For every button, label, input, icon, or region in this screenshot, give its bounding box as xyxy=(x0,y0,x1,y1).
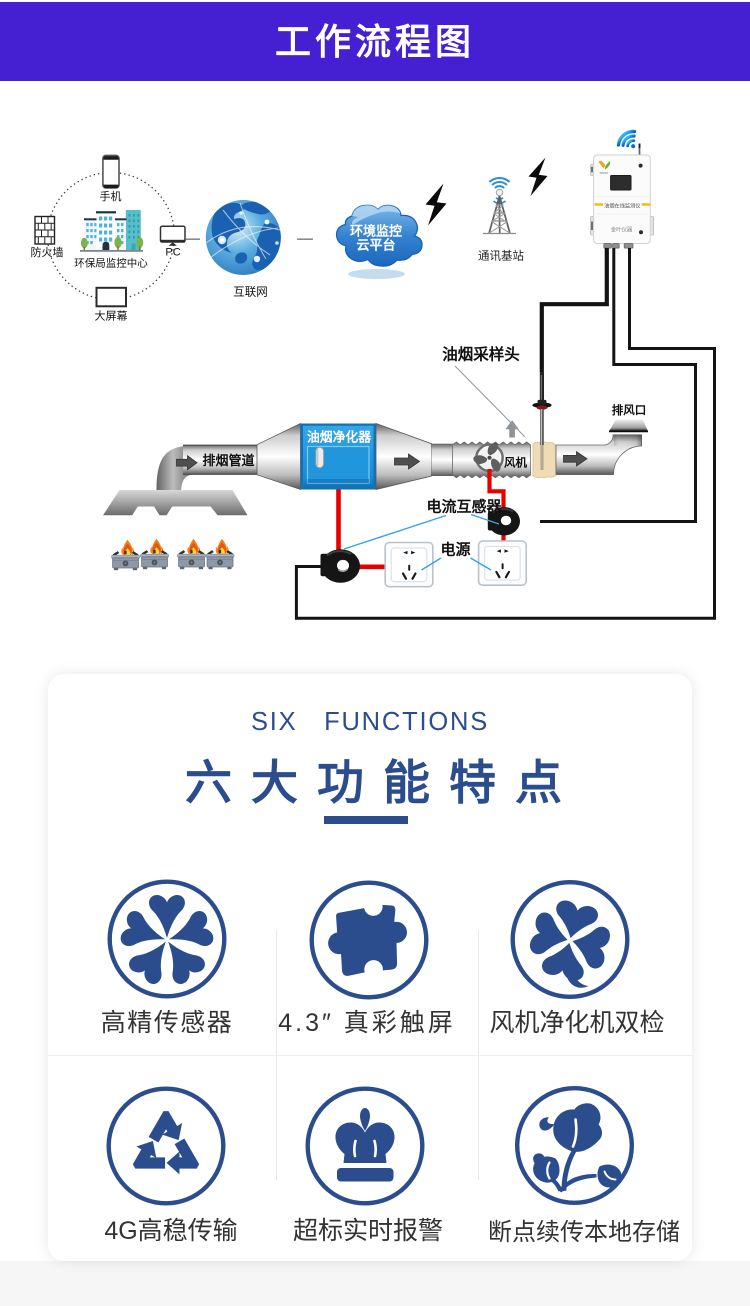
svg-text:云平台: 云平台 xyxy=(356,238,395,253)
svg-text:金叶仪器: 金叶仪器 xyxy=(611,225,633,233)
svg-text:通讯基站: 通讯基站 xyxy=(478,249,524,263)
svg-text:排风口: 排风口 xyxy=(612,403,647,417)
svg-text:环境监控: 环境监控 xyxy=(350,224,402,239)
svg-text:大屏幕: 大屏幕 xyxy=(95,309,128,323)
svg-text:电源: 电源 xyxy=(440,541,470,559)
svg-text:风机: 风机 xyxy=(504,456,527,470)
svg-text:排烟管道: 排烟管道 xyxy=(202,453,254,468)
svg-text:电流互感器: 电流互感器 xyxy=(426,498,502,516)
svg-text:PC: PC xyxy=(165,247,180,259)
svg-text:环保局监控中心: 环保局监控中心 xyxy=(74,257,148,270)
svg-text:互联网: 互联网 xyxy=(233,285,268,299)
svg-text:防火墙: 防火墙 xyxy=(31,245,64,259)
svg-text:油烟在线监测仪: 油烟在线监测仪 xyxy=(604,201,640,209)
svg-text:油烟采样头: 油烟采样头 xyxy=(442,345,520,364)
svg-text:油烟净化器: 油烟净化器 xyxy=(307,430,371,445)
svg-text:手机: 手机 xyxy=(100,189,122,203)
